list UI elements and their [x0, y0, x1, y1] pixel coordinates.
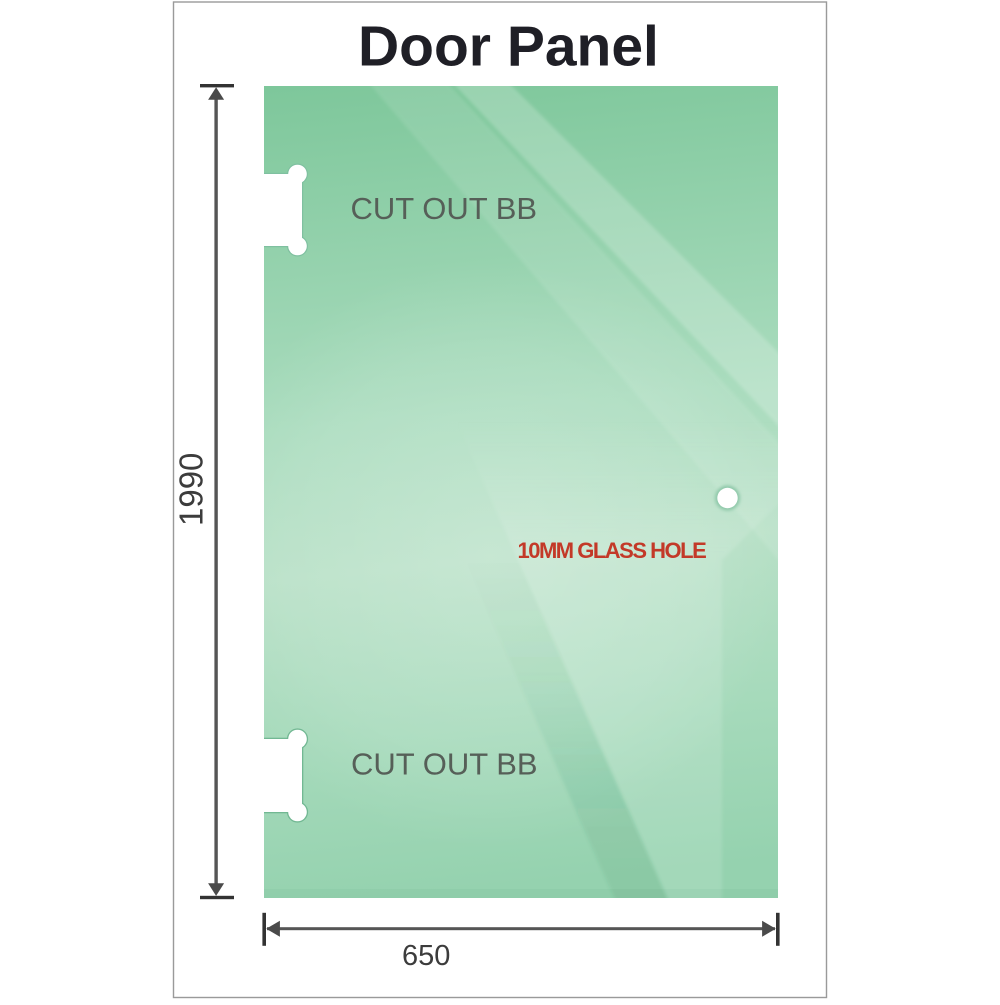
svg-text:1990: 1990 — [173, 453, 210, 526]
svg-text:650: 650 — [402, 940, 450, 972]
svg-text:CUT OUT BB: CUT OUT BB — [351, 191, 538, 226]
svg-text:10MM GLASS HOLE: 10MM GLASS HOLE — [518, 538, 707, 563]
svg-text:CUT OUT BB: CUT OUT BB — [351, 746, 538, 781]
svg-text:Door Panel: Door Panel — [358, 15, 659, 79]
